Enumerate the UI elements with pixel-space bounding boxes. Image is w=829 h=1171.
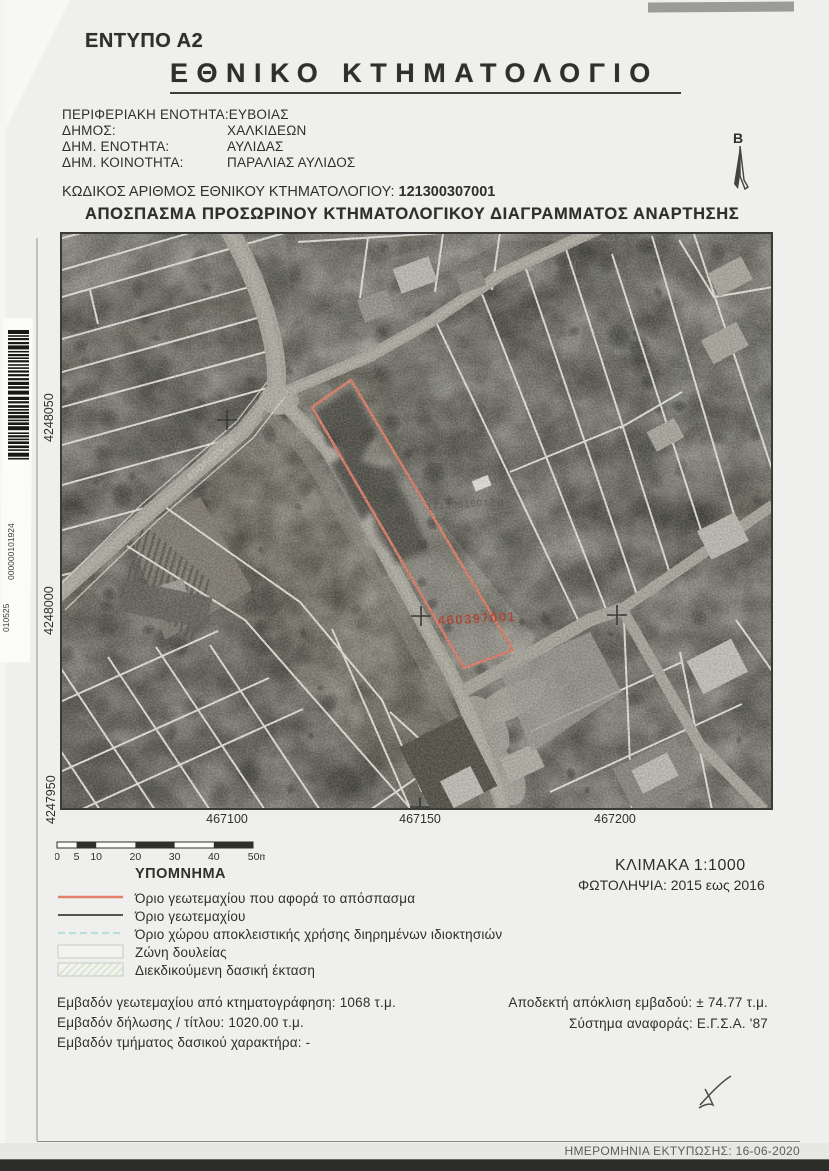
svg-text:30: 30 <box>169 851 181 863</box>
svg-text:5: 5 <box>74 851 80 863</box>
svg-text:010525: 010525 <box>1 603 11 632</box>
svg-text:50m: 50m <box>248 851 265 863</box>
svg-text:000000101924: 000000101924 <box>6 523 16 580</box>
svg-text:20: 20 <box>130 851 142 863</box>
svg-text:0: 0 <box>55 851 60 863</box>
svg-text:40: 40 <box>208 851 220 863</box>
svg-text:10: 10 <box>90 851 102 863</box>
